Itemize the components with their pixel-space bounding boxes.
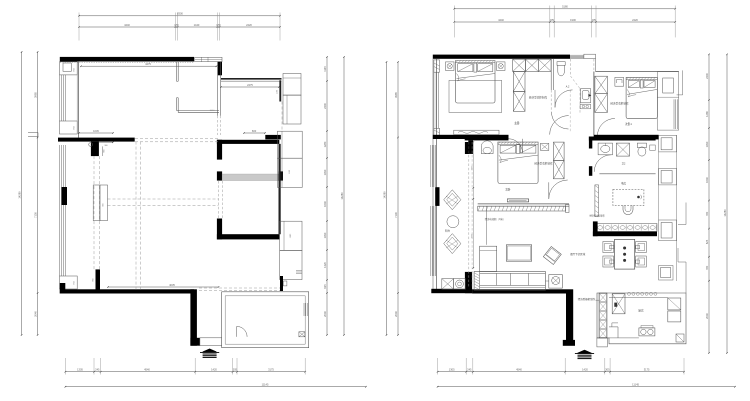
svg-text:书房: 书房 bbox=[621, 182, 627, 186]
svg-text:1280: 1280 bbox=[323, 141, 327, 147]
svg-text:次卧: 次卧 bbox=[505, 187, 511, 191]
svg-text:305: 305 bbox=[605, 368, 610, 372]
svg-text:305: 305 bbox=[233, 368, 238, 372]
svg-text:1045: 1045 bbox=[93, 129, 99, 133]
svg-text:经济型衣柜制作: 经济型衣柜制作 bbox=[529, 96, 548, 100]
svg-text:1145: 1145 bbox=[323, 66, 327, 72]
svg-text:(25): (25) bbox=[592, 18, 597, 22]
svg-text:经济型衣柜制作: 经济型衣柜制作 bbox=[610, 102, 629, 106]
svg-text:7130: 7130 bbox=[394, 212, 398, 218]
svg-text:4440: 4440 bbox=[124, 23, 130, 27]
svg-text:4540: 4540 bbox=[144, 368, 150, 372]
svg-text:3175: 3175 bbox=[644, 368, 650, 372]
svg-text:14280: 14280 bbox=[18, 191, 22, 199]
svg-text:(25): (25) bbox=[550, 18, 555, 22]
svg-text:(25): (25) bbox=[216, 23, 221, 27]
svg-text:(25): (25) bbox=[174, 23, 179, 27]
svg-text:1640: 1640 bbox=[323, 201, 327, 207]
svg-text:3175: 3175 bbox=[268, 368, 274, 372]
svg-text:4035: 4035 bbox=[169, 283, 175, 287]
svg-text:8300: 8300 bbox=[177, 12, 183, 16]
svg-text:经济型橱柜制作: 经济型橱柜制作 bbox=[578, 297, 596, 301]
svg-text:1010: 1010 bbox=[210, 110, 216, 112]
svg-text:厨房: 厨房 bbox=[638, 309, 644, 313]
svg-text:625: 625 bbox=[323, 284, 327, 289]
svg-text:11145: 11145 bbox=[632, 383, 639, 387]
svg-text:14280: 14280 bbox=[340, 192, 344, 200]
svg-text:餐厅下沉区域: 餐厅下沉区域 bbox=[570, 252, 586, 256]
svg-text:245: 245 bbox=[95, 368, 100, 372]
svg-text:1390: 1390 bbox=[323, 232, 327, 238]
svg-text:4440: 4440 bbox=[498, 18, 504, 22]
svg-text:2400: 2400 bbox=[323, 103, 327, 109]
svg-text:2475: 2475 bbox=[247, 83, 253, 87]
svg-text:2420: 2420 bbox=[246, 23, 252, 27]
svg-text:245: 245 bbox=[467, 368, 472, 372]
svg-text:1900: 1900 bbox=[570, 18, 576, 22]
svg-text:1440: 1440 bbox=[194, 23, 200, 27]
svg-text:14280: 14280 bbox=[383, 191, 387, 199]
svg-text:780: 780 bbox=[705, 265, 709, 270]
svg-text:次卧1: 次卧1 bbox=[625, 122, 632, 126]
svg-text:卫2: 卫2 bbox=[622, 163, 626, 166]
svg-text:2040: 2040 bbox=[394, 311, 398, 317]
svg-text:经济电视柜（9米）: 经济电视柜（9米） bbox=[485, 217, 505, 221]
svg-text:1305: 1305 bbox=[449, 368, 455, 372]
svg-text:780: 780 bbox=[705, 211, 709, 216]
svg-text:3985: 3985 bbox=[34, 92, 38, 98]
svg-text:1420: 1420 bbox=[211, 368, 217, 372]
svg-text:2040: 2040 bbox=[705, 313, 709, 319]
svg-text:1420: 1420 bbox=[323, 262, 327, 268]
svg-text:2040: 2040 bbox=[34, 311, 38, 317]
svg-text:1305: 1305 bbox=[77, 368, 83, 372]
svg-text:1390: 1390 bbox=[705, 141, 709, 147]
svg-text:主卧: 主卧 bbox=[514, 121, 520, 125]
svg-text:600: 600 bbox=[252, 129, 257, 133]
svg-text:1390: 1390 bbox=[323, 169, 327, 175]
svg-text:阳台: 阳台 bbox=[445, 229, 451, 233]
svg-text:2040: 2040 bbox=[323, 311, 327, 317]
svg-text:1640: 1640 bbox=[705, 177, 709, 183]
svg-text:5180: 5180 bbox=[562, 5, 568, 9]
svg-text:2420: 2420 bbox=[632, 18, 638, 22]
svg-text:1280: 1280 bbox=[705, 111, 709, 117]
svg-text:经济型衣柜制作: 经济型衣柜制作 bbox=[534, 162, 553, 166]
svg-text:3985: 3985 bbox=[394, 92, 398, 98]
svg-text:14280: 14280 bbox=[723, 209, 727, 217]
svg-text:11145: 11145 bbox=[262, 383, 269, 387]
svg-text:4475: 4475 bbox=[145, 62, 151, 66]
svg-text:4540: 4540 bbox=[516, 368, 522, 372]
svg-text:625: 625 bbox=[705, 239, 709, 244]
svg-text:1420: 1420 bbox=[582, 368, 588, 372]
svg-text:2400: 2400 bbox=[705, 73, 709, 79]
svg-text:7130: 7130 bbox=[34, 212, 38, 218]
